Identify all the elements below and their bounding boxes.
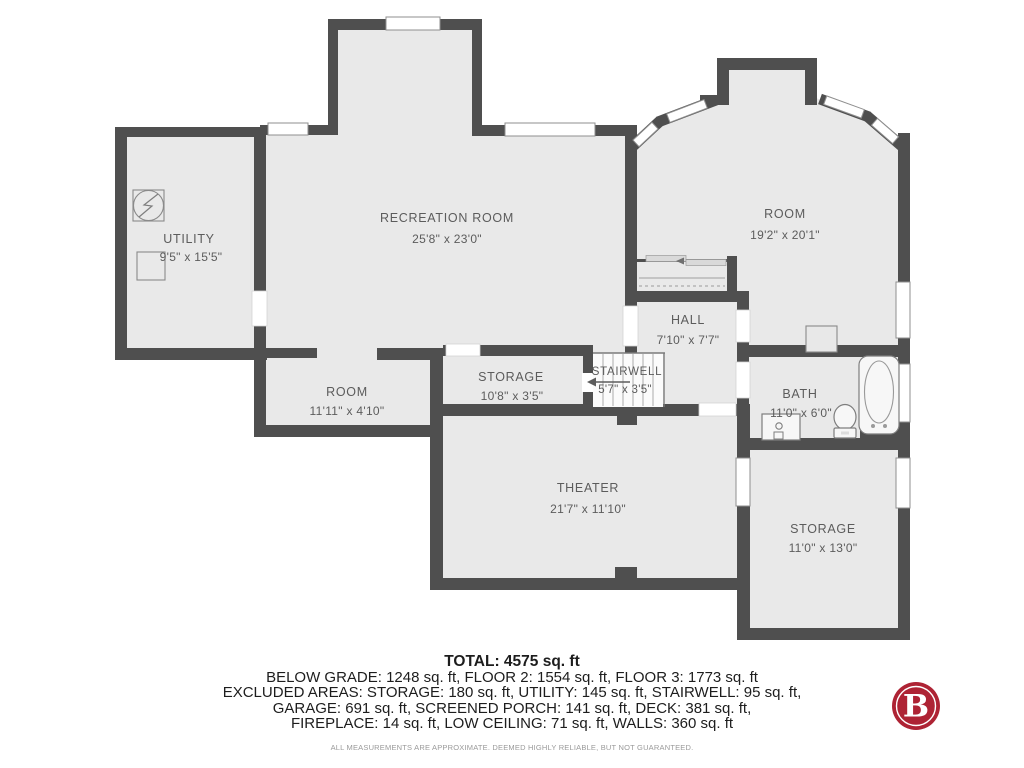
window-icon <box>736 458 750 506</box>
lower-room-label: ROOM <box>326 385 368 399</box>
stairwell-label: STAIRWELL <box>592 366 662 378</box>
theater-label: THEATER <box>557 481 619 495</box>
window-icon <box>505 123 595 136</box>
upper-room-label: ROOM <box>764 207 806 221</box>
closet-shelf-line <box>639 277 725 279</box>
large-storage-floor <box>744 444 904 634</box>
theater-top-door-stub <box>617 414 637 425</box>
recreation-bump-floor <box>334 25 476 135</box>
area-summary: TOTAL: 4575 sq. ft BELOW GRADE: 1248 sq.… <box>0 654 1024 752</box>
excluded-areas-text3: FIREPLACE: 14 sq. ft, LOW CEILING: 71 sq… <box>0 716 1024 731</box>
theater-floor <box>436 410 744 584</box>
door-icon <box>736 310 750 342</box>
disclaimer-text: ALL MEASUREMENTS ARE APPROXIMATE. DEEMED… <box>0 743 1024 752</box>
excluded-areas-text2: GARAGE: 691 sq. ft, SCREENED PORCH: 141 … <box>0 701 1024 716</box>
utility-label: UTILITY <box>163 232 214 246</box>
small-storage-dims: 10'8" x 3'5" <box>481 389 544 403</box>
brand-logo: B <box>891 681 941 731</box>
upper-room-dims: 19'2" x 20'1" <box>750 228 820 242</box>
sliding-door-panel-icon <box>686 260 726 266</box>
floors-area-text: BELOW GRADE: 1248 sq. ft, FLOOR 2: 1554 … <box>0 670 1024 685</box>
door-icon <box>252 291 267 326</box>
stairwell-dims: 5'7" x 3'5" <box>598 384 652 396</box>
recreation-label: RECREATION ROOM <box>380 211 514 225</box>
small-storage-label: STORAGE <box>478 370 544 384</box>
door-icon <box>623 306 638 346</box>
window-icon <box>268 123 308 135</box>
brand-logo-icon: B <box>891 681 941 731</box>
lower-room-dims: 11'11" x 4'10" <box>310 404 385 418</box>
door-icon <box>736 362 750 398</box>
bath-label: BATH <box>782 387 817 401</box>
floor-plan-page: UTILITY 9'5" x 15'5" RECREATION ROOM 25'… <box>0 0 1024 768</box>
door-icon <box>446 344 480 356</box>
wet-bar-icon <box>806 326 837 352</box>
large-storage-label: STORAGE <box>790 522 856 536</box>
stairwell-graphic <box>587 353 665 407</box>
window-icon <box>896 458 910 508</box>
floor-plan-drawing: UTILITY 9'5" x 15'5" RECREATION ROOM 25'… <box>0 0 1024 650</box>
theater-dims: 21'7" x 11'10" <box>550 502 626 516</box>
hall-dims: 7'10" x 7'7" <box>657 333 720 347</box>
bath-dims: 11'0" x 6'0" <box>770 406 832 420</box>
toilet-icon <box>834 405 856 430</box>
brand-logo-letter: B <box>903 689 929 725</box>
total-area-text: TOTAL: 4575 sq. ft <box>0 654 1024 670</box>
large-storage-dims: 11'0" x 13'0" <box>789 541 858 555</box>
room-floors <box>121 25 904 634</box>
utility-dims: 9'5" x 15'5" <box>160 250 223 264</box>
excluded-areas-text: EXCLUDED AREAS: STORAGE: 180 sq. ft, UTI… <box>0 685 1024 700</box>
window-icon <box>896 282 910 338</box>
hall-label: HALL <box>671 313 705 327</box>
door-icon <box>699 403 736 416</box>
recreation-dims: 25'8" x 23'0" <box>412 232 482 246</box>
theater-bottom-door-stub <box>615 567 637 580</box>
window-icon <box>386 17 440 30</box>
